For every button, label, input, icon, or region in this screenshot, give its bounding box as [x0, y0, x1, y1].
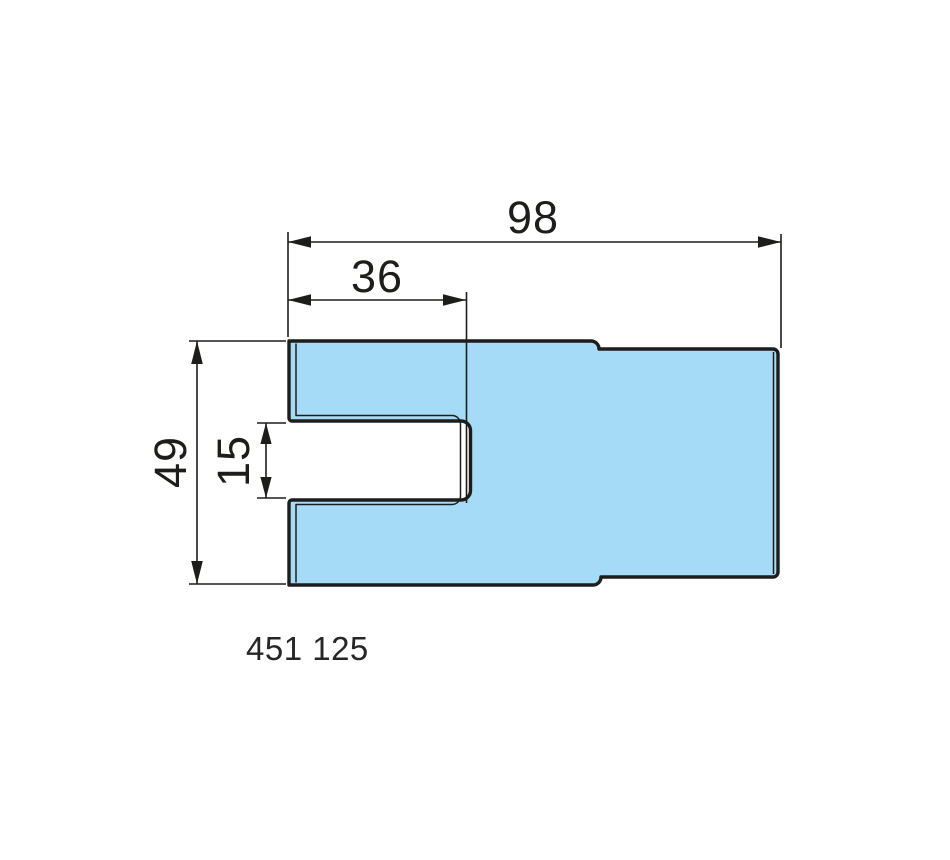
technical-drawing-svg: 98 36 49 15 451 125 — [0, 0, 950, 860]
arrowhead-left-icon — [288, 236, 311, 248]
arrowhead-left-icon — [288, 294, 311, 306]
arrowhead-top-icon — [260, 423, 271, 444]
dimension-value-slot-depth: 36 — [351, 251, 403, 302]
dimension-value-overall-width: 98 — [507, 192, 559, 243]
dimension-value-slot-opening: 15 — [208, 435, 259, 487]
arrowhead-right-icon — [443, 294, 466, 306]
arrowhead-bottom-icon — [191, 561, 203, 584]
arrowhead-bottom-icon — [260, 477, 271, 498]
arrowhead-top-icon — [191, 341, 203, 364]
drawing-canvas: 98 36 49 15 451 125 — [0, 0, 950, 860]
dimension-value-overall-height: 49 — [145, 436, 196, 488]
dimension-slot-opening: 15 — [208, 423, 286, 498]
profile-body-shape — [289, 341, 778, 585]
arrowhead-right-icon — [758, 236, 781, 248]
part-number-label: 451 125 — [246, 630, 369, 667]
